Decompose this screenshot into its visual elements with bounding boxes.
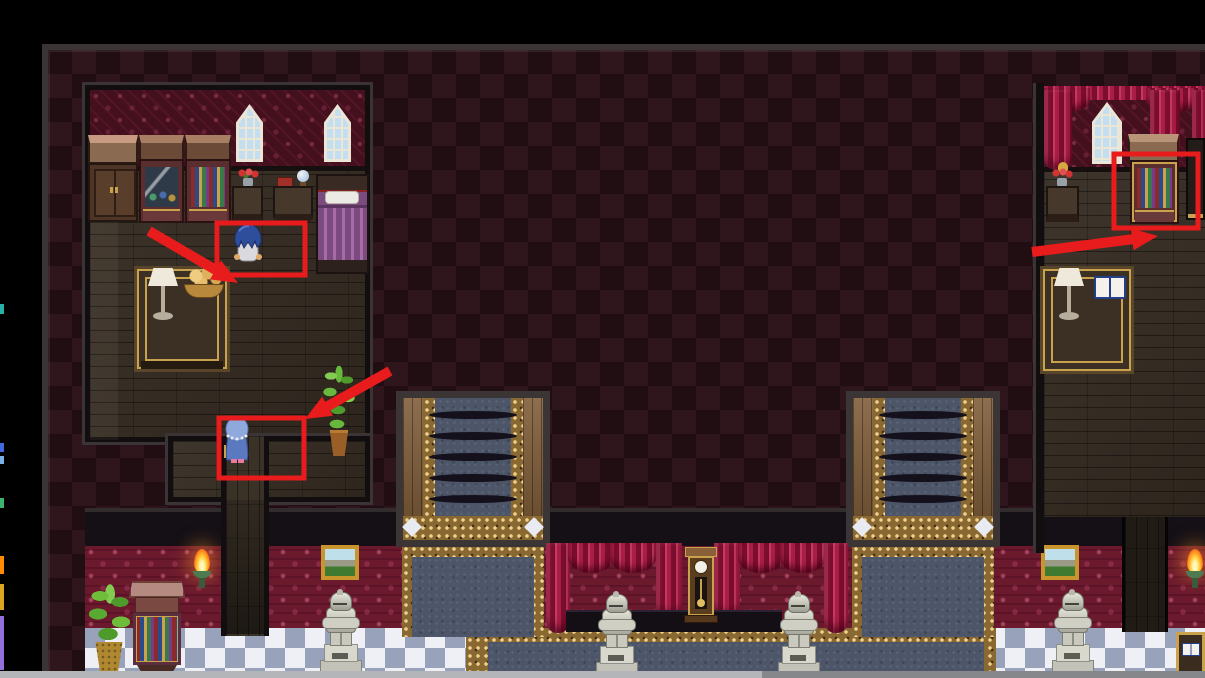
stair-runner-left [402,545,544,637]
bookshelf-glass [1137,168,1172,208]
dock-app-sliver[interactable] [0,456,4,464]
wardrobe-door [94,169,116,217]
npc-bluehair[interactable] [231,221,265,266]
stair-step [429,453,517,461]
stair-step [429,432,517,440]
knight-statue [776,585,820,675]
lamp-base [1059,312,1079,320]
curtain-swag [738,543,784,573]
curtain-swag [568,543,614,573]
bedroom-plant [322,366,356,460]
bread-basket [184,266,224,300]
statue-arms [322,617,360,629]
wardrobe-knob [110,187,113,193]
lamp-shade [1054,268,1084,286]
corner-book-table [1176,632,1205,674]
statue-crest [1069,589,1075,595]
bed-blanket [318,205,367,263]
statue-plaque [1064,653,1080,659]
torch-stem [1192,578,1198,588]
clock-pendulum-disc [697,599,705,607]
framed-painting [321,545,359,580]
torch-flame-icon [1187,549,1203,573]
stair-step [429,495,517,503]
window-pane [239,107,260,159]
stair-landing-band [853,516,993,540]
lamp-stem [1067,286,1071,312]
wall-shelf-box [1128,134,1179,163]
grandfather-clock[interactable] [684,547,718,623]
dock-strip [0,44,4,678]
torch-cup [1186,571,1204,578]
lamp-base [153,312,173,320]
bedroom-light-haze [90,200,118,440]
curtain-drape [1044,90,1072,170]
shelf-glass [133,613,181,665]
table-legs [141,361,223,369]
stair-step [879,474,967,482]
curtain-drape [656,543,682,617]
stair-runner-right-field [862,557,984,637]
statue-plaque [608,655,624,661]
statue-visor [791,605,805,607]
shelf-lid [129,581,185,598]
statue-arms [1054,617,1092,629]
flower-vase [1051,168,1073,188]
framed-painting [1041,545,1079,580]
bed [316,174,369,274]
cabinet-base [143,209,180,221]
top-black-bar [0,0,1205,44]
stair-step [429,411,517,419]
basket [184,284,224,298]
stair-step [879,495,967,503]
stair-step [879,411,967,419]
bottom-bar [0,671,1205,678]
bookshelf-base [1135,210,1174,222]
plant-pot [94,642,124,672]
statue-plaque [790,655,806,661]
npc-granny[interactable] [220,415,254,465]
bed-pillow [325,191,359,204]
open-book-icon[interactable] [1094,276,1126,299]
statue-visor [609,605,623,607]
statue-crest [337,589,343,595]
bookshelf-base [189,209,227,221]
clock-pendulum [700,579,702,601]
lamp-shade [148,268,178,286]
plant-leaves [322,366,356,434]
nightstand [273,186,313,222]
dock-app-sliver[interactable] [0,498,4,508]
stairwell-left[interactable] [396,391,550,547]
wardrobe-door [114,169,136,217]
wardrobe-knob [115,187,118,193]
statue-arms [780,619,818,631]
stair-step [879,453,967,461]
side-table [232,186,263,222]
knight-statue [318,581,362,673]
window-pane [1095,105,1119,161]
bed-footboard [318,260,367,272]
globe-lamp [296,170,310,187]
cabinet-glass [145,167,178,207]
torch-sconce [189,549,215,591]
curtain-swag [610,543,656,573]
knight-statue [1050,581,1094,673]
window-pane [327,107,348,159]
globe [297,170,309,182]
table-lamp [1052,268,1086,324]
clock-face [694,560,708,574]
bedroom-bookshelf[interactable] [185,159,231,223]
bookshelf-glass [191,167,225,207]
dock-app-sliver[interactable] [0,616,4,670]
plant-pot [328,430,350,456]
left-black-bar [0,44,42,678]
clock-base [684,615,718,623]
bed-headboard [318,176,367,192]
study-bookshelf[interactable] [1130,160,1179,224]
statue-crest [613,591,619,597]
stairwell-right[interactable] [846,391,1000,547]
hall-carpet [488,642,984,672]
lamp-stem [161,286,165,312]
knight-statue [594,585,638,675]
hall-door-passage-right[interactable] [1122,514,1168,632]
stair-step [879,432,967,440]
stair-runner-left-field [412,557,534,637]
dock-app-sliver[interactable] [0,584,4,610]
dock-app-sliver[interactable] [0,443,4,452]
wall-shelf-box [88,135,138,164]
open-book-icon [1182,643,1200,656]
statue-visor [333,603,347,605]
side-table [1046,186,1079,222]
table-lamp [146,268,180,324]
dock-app-sliver[interactable] [0,304,4,314]
plant-leaves [88,584,130,646]
hall-display-shelf[interactable] [129,581,185,673]
dark-cabinet [1186,138,1205,220]
statue-crest [795,591,801,597]
game-screenshot [0,0,1205,678]
flower-vase [237,168,259,188]
stair-step [429,474,517,482]
corridor-shadow [226,500,264,634]
curtain-drape [824,543,848,633]
stair-runner-right [852,545,994,637]
potted-plant [86,584,132,674]
torch-sconce [1184,549,1205,591]
china-cabinet[interactable] [139,159,184,223]
statue-visor [1065,603,1079,605]
stair-landing-band [403,516,543,540]
shelf-neck [135,597,179,613]
torch-stem [199,578,205,588]
curtain-swag [780,543,826,573]
statue-arms [598,619,636,631]
dock-app-sliver[interactable] [0,556,4,574]
torch-cup [193,571,211,578]
statue-plaque [332,653,348,659]
torch-flame-icon [194,549,210,573]
wardrobe [88,163,138,222]
